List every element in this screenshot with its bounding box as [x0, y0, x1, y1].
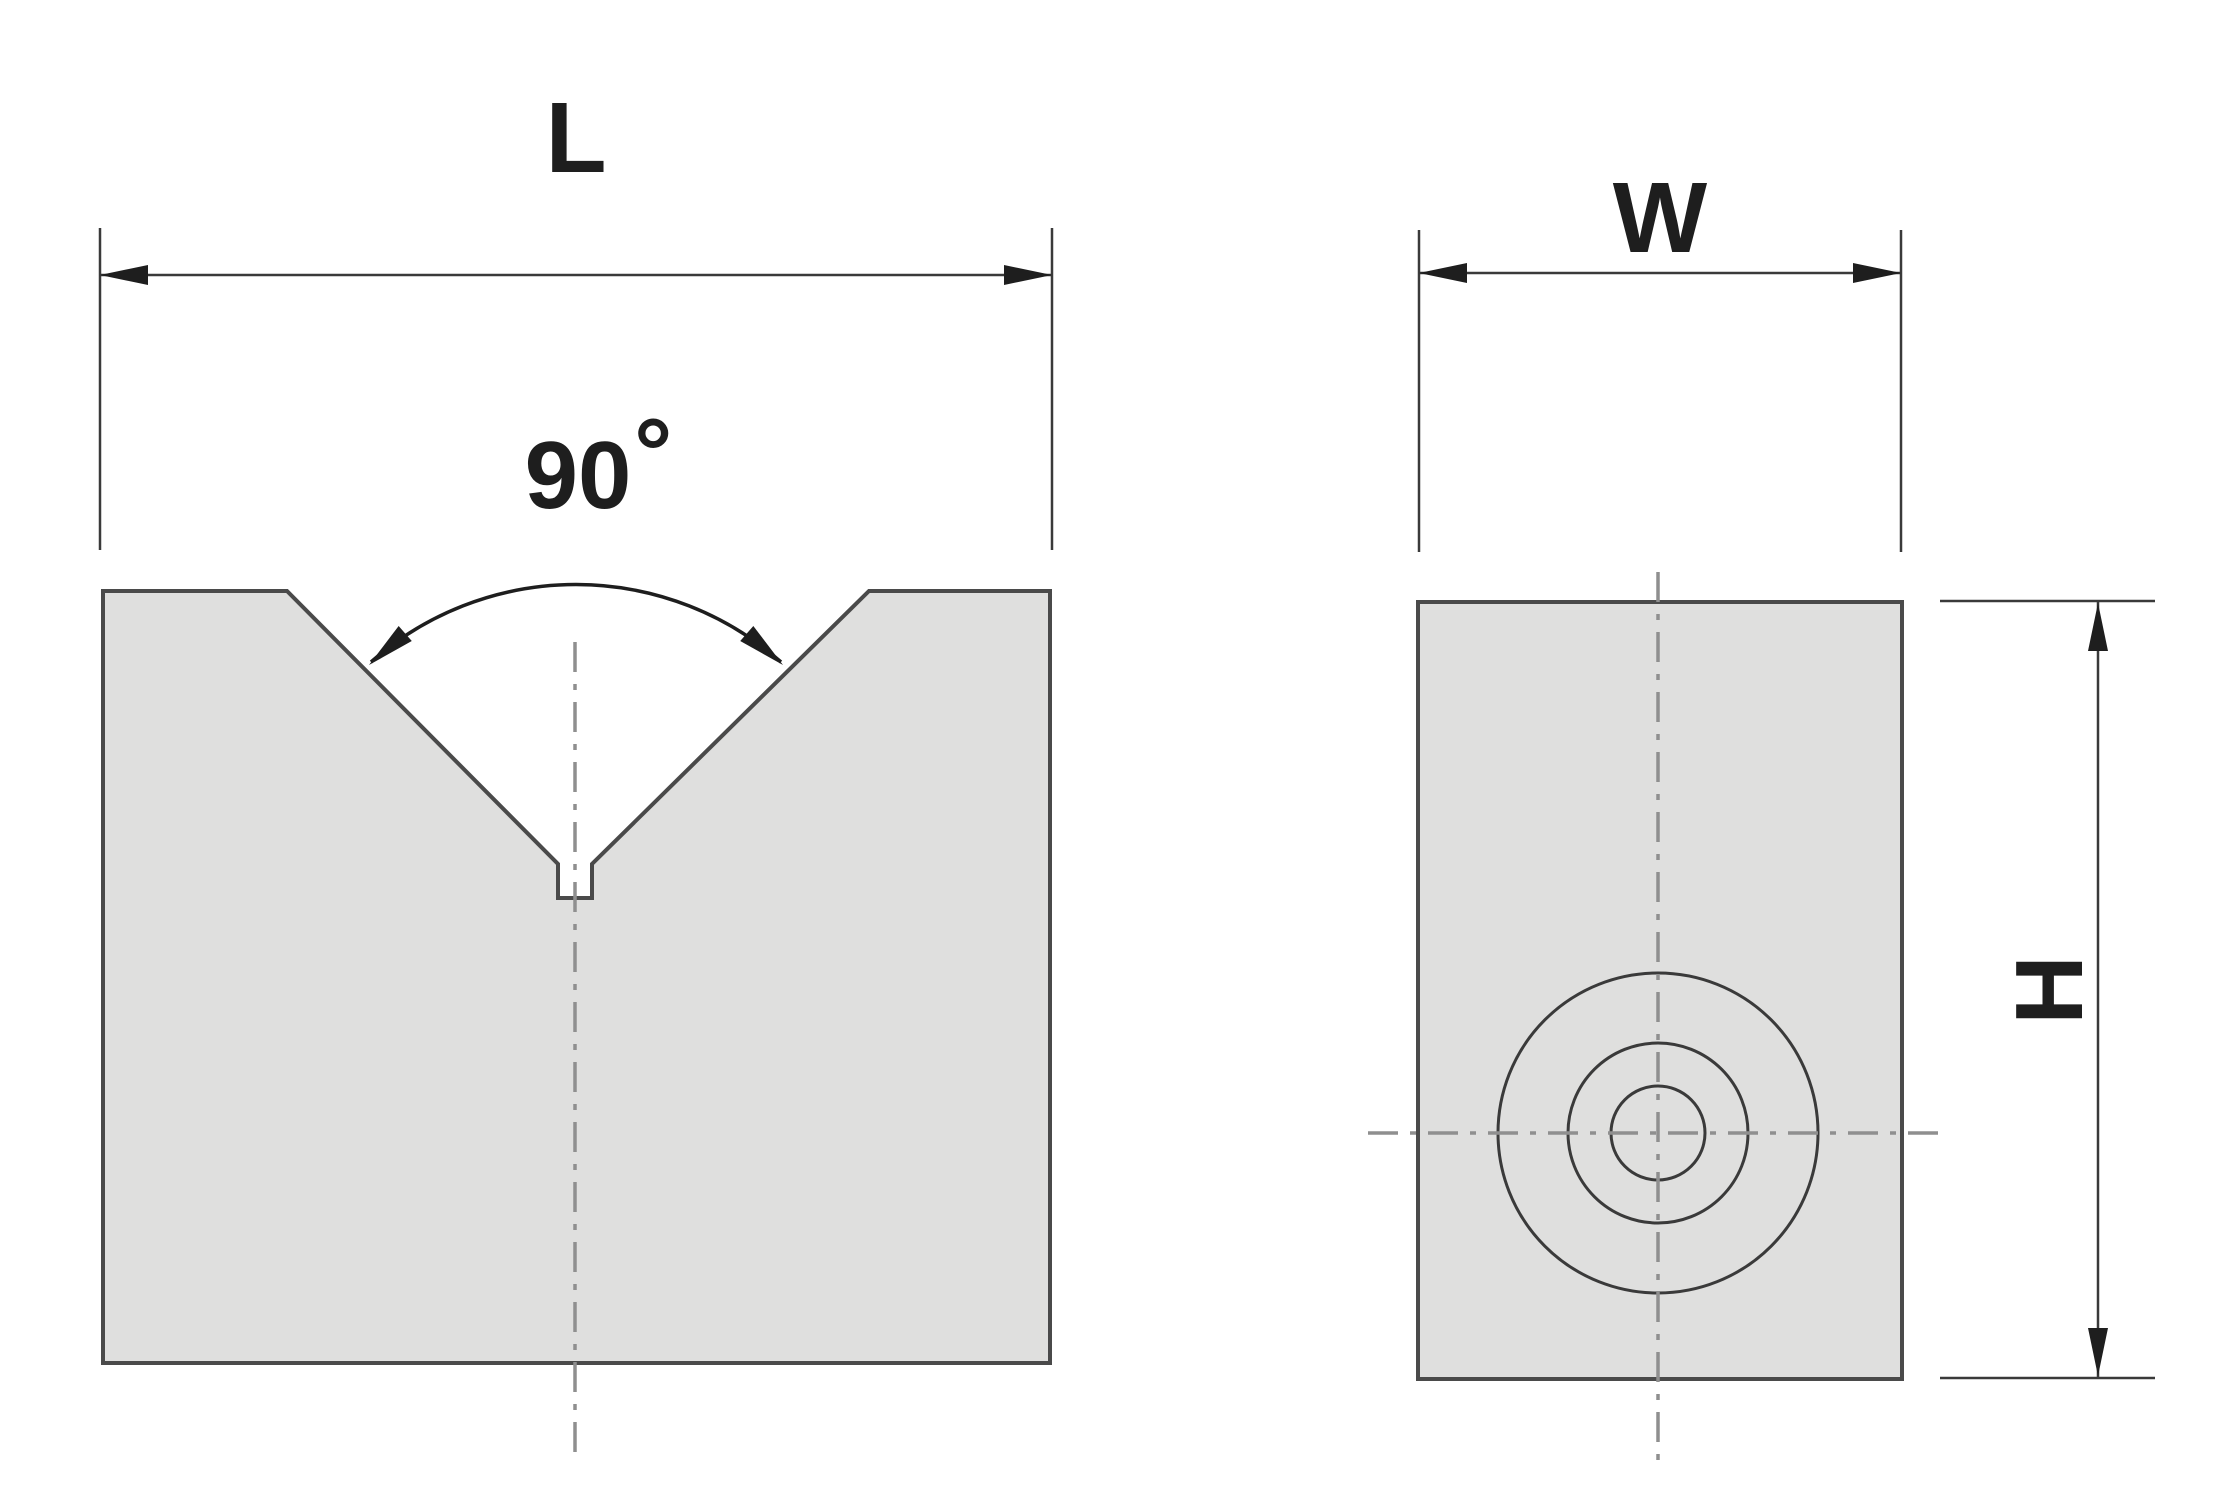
dim-W-arrow-right — [1853, 263, 1901, 283]
angle-value-label: 90 — [525, 422, 632, 529]
degree-symbol: ° — [634, 399, 672, 506]
side-block-outline — [1418, 602, 1902, 1379]
angle-arc-arrow-left — [362, 626, 411, 673]
angle-arc-arrow-right — [740, 626, 789, 673]
dim-L-arrow-right — [1004, 265, 1052, 285]
dim-L-arrow-left — [100, 265, 148, 285]
dim-W-arrow-left — [1419, 263, 1467, 283]
side-view: W H — [1368, 162, 2155, 1468]
dim-H-arrow-top — [2088, 603, 2108, 651]
dim-H-label: H — [1996, 955, 2103, 1024]
vblock-technical-drawing: L 90 ° — [0, 0, 2240, 1504]
dim-H-arrow-bottom — [2088, 1328, 2108, 1376]
drawing-canvas: L 90 ° — [0, 0, 2240, 1504]
dim-W-label: W — [1613, 162, 1708, 274]
front-view: L 90 ° — [100, 82, 1052, 1456]
dim-L-label: L — [545, 82, 606, 194]
